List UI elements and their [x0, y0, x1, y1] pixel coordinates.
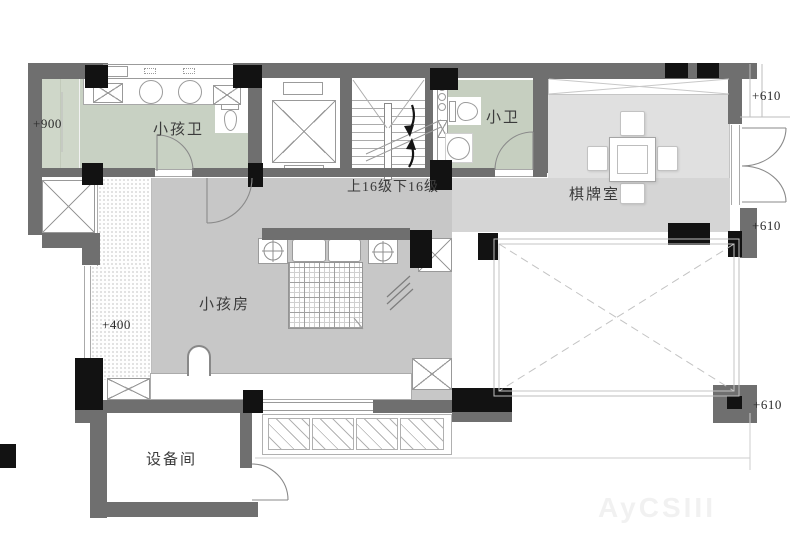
sink-icon	[139, 80, 163, 104]
column	[0, 444, 16, 468]
column	[85, 65, 108, 88]
chair-bottom	[620, 183, 645, 204]
wall-smallbath-bottom-a	[452, 168, 495, 177]
chair-top	[620, 111, 645, 136]
window-seat-panel	[400, 418, 444, 450]
window-seat-panel	[312, 418, 354, 450]
wall-kids-south-b	[373, 400, 452, 413]
watermark: AyCSIII	[598, 492, 716, 524]
wall-left-mid	[28, 173, 42, 235]
wall-right-corner	[728, 63, 757, 79]
column	[478, 233, 498, 260]
toilet-tank-icon	[449, 101, 456, 122]
desk-counter	[150, 373, 412, 400]
elevation-900: +900	[33, 117, 62, 130]
kids-room-label: 小孩房	[199, 298, 250, 313]
column	[243, 390, 263, 413]
nightstand	[258, 238, 288, 264]
window-seat-panel	[356, 418, 398, 450]
wall-right-upper	[728, 79, 742, 124]
chair-right	[657, 146, 678, 171]
chair-left	[587, 146, 608, 171]
floor-plan-canvas: 小孩卫 小卫 棋牌室 小孩房 设备间 上16级下16级 +900 +400 +6…	[0, 0, 800, 558]
french-door-frame	[731, 125, 740, 205]
wall-top-right	[548, 63, 757, 79]
column	[75, 358, 103, 410]
wall-equipment-bottom	[90, 502, 258, 517]
column	[665, 63, 688, 78]
elevation-610-top: +610	[752, 89, 781, 102]
wall-fixture-band	[103, 64, 238, 79]
wall-corridor-room	[262, 228, 410, 240]
wall-stairs-right	[425, 78, 433, 173]
bath-cabinet-icon	[213, 85, 241, 105]
cabinet-icon	[412, 358, 452, 390]
wall-top-mid	[233, 63, 548, 78]
arch-niche-icon	[187, 345, 211, 376]
wall-recess-stub	[82, 233, 100, 265]
elevator-shaft	[272, 100, 336, 163]
kids-bath-door-sill	[155, 169, 192, 177]
french-door-arc	[742, 128, 786, 166]
column	[82, 163, 103, 185]
french-door-arc	[742, 166, 786, 202]
pillow	[292, 239, 326, 262]
wall-elevator-stairs	[340, 78, 352, 173]
column	[248, 163, 263, 187]
elevation-400: +400	[102, 318, 131, 331]
left-window-lines	[84, 266, 91, 359]
wall-smallbath-chess	[533, 78, 548, 173]
elevation-610-mid: +610	[752, 219, 781, 232]
wall-bath-bottom-b	[192, 168, 248, 177]
wall-se-stub	[452, 412, 512, 422]
wall-right-mid	[740, 208, 757, 258]
wall-terrace-col-stub	[75, 410, 93, 423]
counter-cabinet-icon	[107, 378, 150, 400]
terrace-stipple-upper	[97, 178, 152, 266]
wall-kids-south-a	[105, 400, 243, 413]
column	[728, 231, 742, 257]
column	[430, 68, 458, 90]
equipment-door-arc	[252, 464, 288, 500]
wall-bath-elevator	[248, 78, 262, 173]
elevation-610-bottom: +610	[753, 398, 782, 411]
chess-room-label: 棋牌室	[569, 188, 620, 203]
chess-window-band	[548, 78, 730, 95]
wall-equipment-right	[240, 412, 252, 468]
bed-quilt	[288, 262, 363, 329]
mahjong-table-inner	[617, 145, 648, 174]
column	[233, 65, 262, 88]
equipment-room-label: 设备间	[146, 453, 197, 468]
nightstand	[368, 238, 398, 264]
wall-smallbath-bottom-b	[533, 168, 547, 177]
kids-bath-label: 小孩卫	[153, 123, 204, 138]
small-bath-label: 小卫	[486, 111, 520, 126]
shelf-dot-icon	[438, 93, 446, 101]
wall-elevstairs-bottom	[262, 168, 432, 177]
column	[697, 63, 719, 78]
sink-icon	[447, 137, 470, 160]
elevator-counterweight	[283, 82, 323, 95]
south-window	[263, 402, 373, 411]
sink-icon	[178, 80, 202, 104]
column	[452, 388, 512, 412]
closet-recess-icon	[42, 180, 95, 233]
column	[668, 223, 710, 245]
void-opening	[494, 239, 739, 396]
column	[727, 396, 742, 409]
small-bath-door-sill	[495, 169, 533, 177]
window-seat-panel	[268, 418, 310, 450]
pillow	[328, 239, 361, 262]
stairs-label: 上16级下16级	[347, 181, 439, 195]
shelf-dot-icon	[438, 103, 446, 111]
column	[410, 230, 432, 268]
